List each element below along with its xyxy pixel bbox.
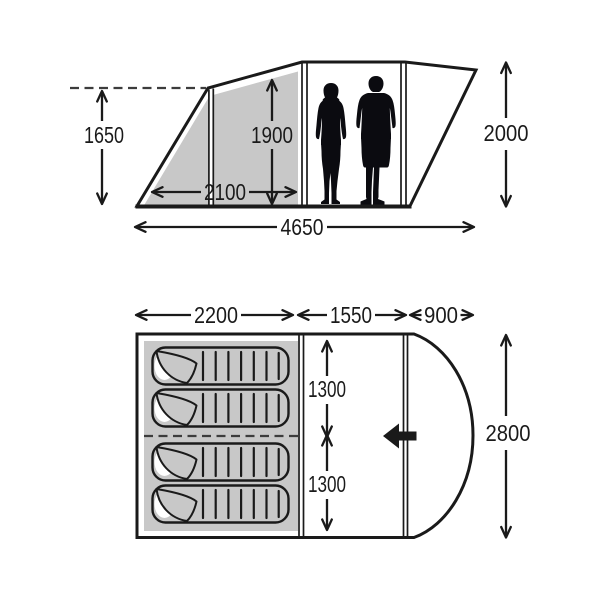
sleeping-bag-icon [153,390,289,427]
dim-total-width: 2800 [486,335,531,538]
floor-plan-diagram: 2200 1550 900 1300 1300 [136,302,531,538]
tent-spec-diagram: 1650 1900 2100 4650 2000 [0,0,600,600]
dim-rear-height: 2000 [484,63,529,207]
dim-label-2100: 2100 [204,179,246,205]
sleeping-bag-icon [153,444,289,481]
dim-label-2200: 2200 [194,302,238,328]
dim-total-length: 4650 [135,214,474,240]
dim-label-2000: 2000 [484,120,529,146]
dim-porch-length: 900 [410,302,473,328]
dim-label-1300-bottom: 1300 [308,471,346,497]
side-view-diagram: 1650 1900 2100 4650 2000 [70,62,529,240]
dim-label-900: 900 [424,302,458,328]
dim-label-2800: 2800 [486,420,531,446]
sleeping-bag-icon [153,348,289,385]
dim-living-length: 1550 [298,302,406,328]
dim-label-1900: 1900 [251,122,293,148]
dim-label-1300-top: 1300 [308,376,346,402]
sleeping-bag-icon [153,486,289,523]
dim-label-1650: 1650 [84,122,124,148]
dim-label-4650: 4650 [281,214,324,240]
dim-label-1550: 1550 [330,302,372,328]
dim-front-pole-height: 1650 [84,91,124,204]
dim-bedroom-length: 2200 [136,302,293,328]
